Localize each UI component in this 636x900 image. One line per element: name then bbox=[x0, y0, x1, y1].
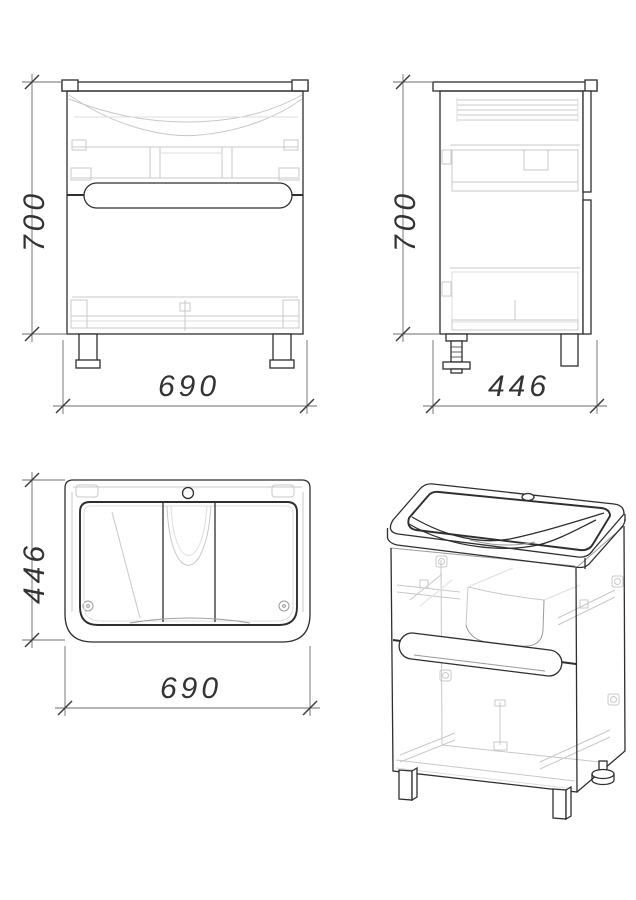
side-adjustable-foot bbox=[443, 334, 470, 373]
left-leg bbox=[79, 334, 97, 361]
left-leg-foot bbox=[76, 360, 100, 368]
iso-front-left-leg bbox=[399, 770, 412, 800]
faucet-hole-top bbox=[183, 488, 194, 499]
faucet-hole-iso bbox=[522, 494, 534, 501]
front-lower-drawer-detail bbox=[71, 297, 299, 331]
vanity-cabinet-drawing: 700 690 bbox=[0, 0, 636, 900]
front-sink-silhouette bbox=[69, 95, 302, 136]
iso-interior-detail bbox=[396, 556, 623, 789]
countertop-front bbox=[62, 80, 308, 91]
right-leg-foot bbox=[270, 360, 294, 368]
front-width-label: 690 bbox=[158, 370, 220, 403]
technical-drawing-sheet: 700 690 bbox=[0, 0, 636, 900]
countertop-side bbox=[433, 80, 597, 91]
iso-legs bbox=[399, 761, 614, 819]
front-upper-drawer-detail bbox=[71, 140, 299, 180]
top-depth-dimension: 446 bbox=[18, 472, 65, 648]
side-height-label: 700 bbox=[389, 190, 422, 252]
siphon-cutout bbox=[466, 600, 544, 646]
top-width-label: 690 bbox=[160, 672, 222, 705]
drawer-front-edge-side bbox=[583, 91, 591, 334]
cabinet-body-front bbox=[67, 91, 303, 334]
front-legs bbox=[76, 334, 294, 368]
cabinet-body-side bbox=[440, 91, 583, 334]
side-front-leg bbox=[561, 334, 578, 366]
side-height-dimension: 700 bbox=[389, 74, 440, 342]
front-height-label: 700 bbox=[18, 190, 51, 252]
drawer-handle-iso bbox=[399, 633, 562, 676]
side-depth-label: 446 bbox=[488, 370, 550, 403]
top-width-dimension: 690 bbox=[55, 646, 320, 716]
front-height-dimension: 700 bbox=[18, 74, 67, 342]
top-view: 446 690 bbox=[18, 472, 320, 716]
front-view: 700 690 bbox=[18, 74, 317, 414]
iso-adjustable-foot bbox=[592, 761, 614, 785]
side-view: 700 446 bbox=[389, 74, 607, 414]
drawer-handle-front bbox=[84, 183, 292, 208]
side-interior-detail bbox=[442, 98, 580, 330]
right-leg bbox=[273, 334, 291, 361]
iso-front-right-leg bbox=[553, 789, 566, 819]
isometric-view bbox=[388, 484, 626, 819]
top-depth-label: 446 bbox=[18, 542, 51, 604]
